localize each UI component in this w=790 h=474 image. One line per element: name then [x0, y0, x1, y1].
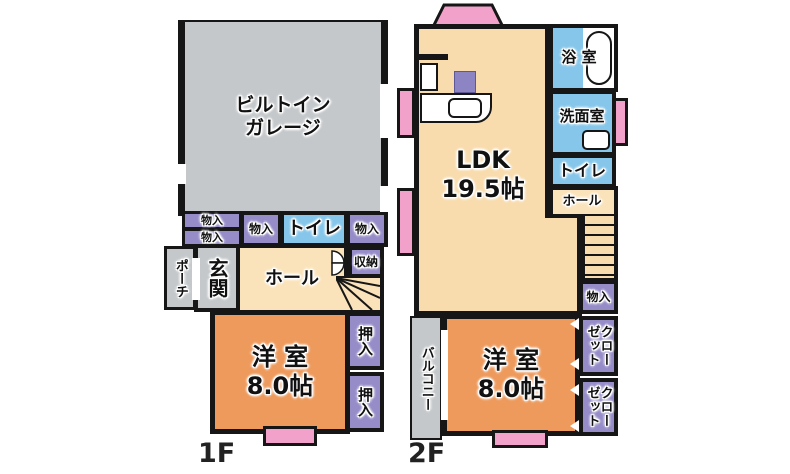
garage-label: ビルトイン ガレージ — [235, 94, 330, 140]
bath-label: 浴 室 — [548, 48, 610, 66]
refrigerator-icon — [420, 63, 438, 91]
room-entrance: 玄関 — [194, 244, 240, 312]
room-hall-2f: ホール — [546, 186, 618, 218]
door-swing-triangle — [570, 384, 579, 396]
door-arc-icon — [330, 250, 348, 280]
kitchen-wall-stub — [414, 54, 448, 60]
stairs-1f — [336, 276, 384, 314]
room-yoshitsu-2f: 洋 室 8.0帖 — [442, 314, 580, 436]
closet-shuno-1f: 収納 — [348, 246, 384, 278]
window-1f-bottom — [263, 426, 317, 446]
stairs-2f — [581, 216, 618, 282]
garage-window-right-2 — [380, 186, 389, 212]
closet-monoire-1f-d: 物入 — [346, 211, 388, 247]
balcony-label: バルコニー — [418, 346, 434, 411]
shuno-label: 収納 — [354, 255, 378, 269]
room-toilet-2f: トイレ — [548, 154, 616, 188]
toilet-label: トイレ — [287, 218, 341, 240]
window-2f-left-b — [397, 188, 415, 256]
floor-2f-label: 2F — [408, 438, 445, 469]
room-ldk-extension — [548, 214, 582, 316]
closet-label: クローゼット — [586, 385, 612, 430]
door-swing-triangle — [570, 318, 579, 330]
hall-label: ホール — [562, 194, 601, 210]
door-swing-triangle — [570, 358, 579, 370]
entrance-label: 玄関 — [205, 258, 229, 298]
washbasin-icon — [582, 130, 610, 150]
floor-1f-label: 1F — [198, 438, 235, 469]
ldk-label: LDK 19.5帖 — [414, 146, 552, 204]
room-toilet-1f: トイレ — [280, 211, 348, 247]
window-2f-bottom — [492, 430, 548, 448]
monoire-label: 物入 — [201, 214, 223, 227]
washroom-label: 洗面室 — [559, 107, 604, 125]
monoire-label: 物入 — [586, 290, 610, 304]
hall-label: ホール — [265, 268, 319, 290]
yoshitsu-2f-label: 洋 室 8.0帖 — [478, 346, 545, 404]
closet-monoire-2f: 物入 — [579, 280, 618, 314]
entrance-door-gap — [192, 258, 200, 300]
toilet-label: トイレ — [558, 161, 606, 180]
stove-icon — [454, 71, 476, 93]
door-swing-triangle — [570, 420, 579, 432]
closet-2f-a: クローゼット — [579, 316, 618, 376]
room-yoshitsu-1f: 洋 室 8.0帖 — [210, 310, 350, 434]
monoire-label: 物入 — [355, 222, 379, 236]
porch-label: ポーチ — [172, 259, 188, 298]
closet-2f-b: クローゼット — [579, 378, 618, 436]
closet-label: クローゼット — [586, 324, 612, 369]
garage-window-right-1 — [380, 84, 389, 138]
oshiire-label: 押入 — [356, 387, 374, 417]
monoire-label: 物入 — [249, 222, 273, 236]
closet-oshiire-1f-a: 押入 — [346, 312, 384, 370]
monoire-label: 物入 — [201, 231, 223, 244]
closet-monoire-1f-c: 物入 — [240, 211, 282, 247]
room-balcony: バルコニー — [410, 316, 442, 440]
oshiire-label: 押入 — [356, 326, 374, 356]
garage-window-left — [177, 164, 186, 184]
window-2f-left-a — [397, 88, 415, 138]
floor-plan: ビルトイン ガレージ 物入 物入 物入 トイレ 物入 ポーチ 玄関 ホール 収納 — [0, 0, 790, 474]
closet-oshiire-1f-b: 押入 — [346, 372, 384, 432]
room-garage: ビルトイン ガレージ — [178, 20, 388, 216]
kitchen-sink-icon — [448, 98, 482, 118]
balcony-door-gap — [441, 330, 448, 420]
yoshitsu-1f-label: 洋 室 8.0帖 — [247, 343, 314, 401]
